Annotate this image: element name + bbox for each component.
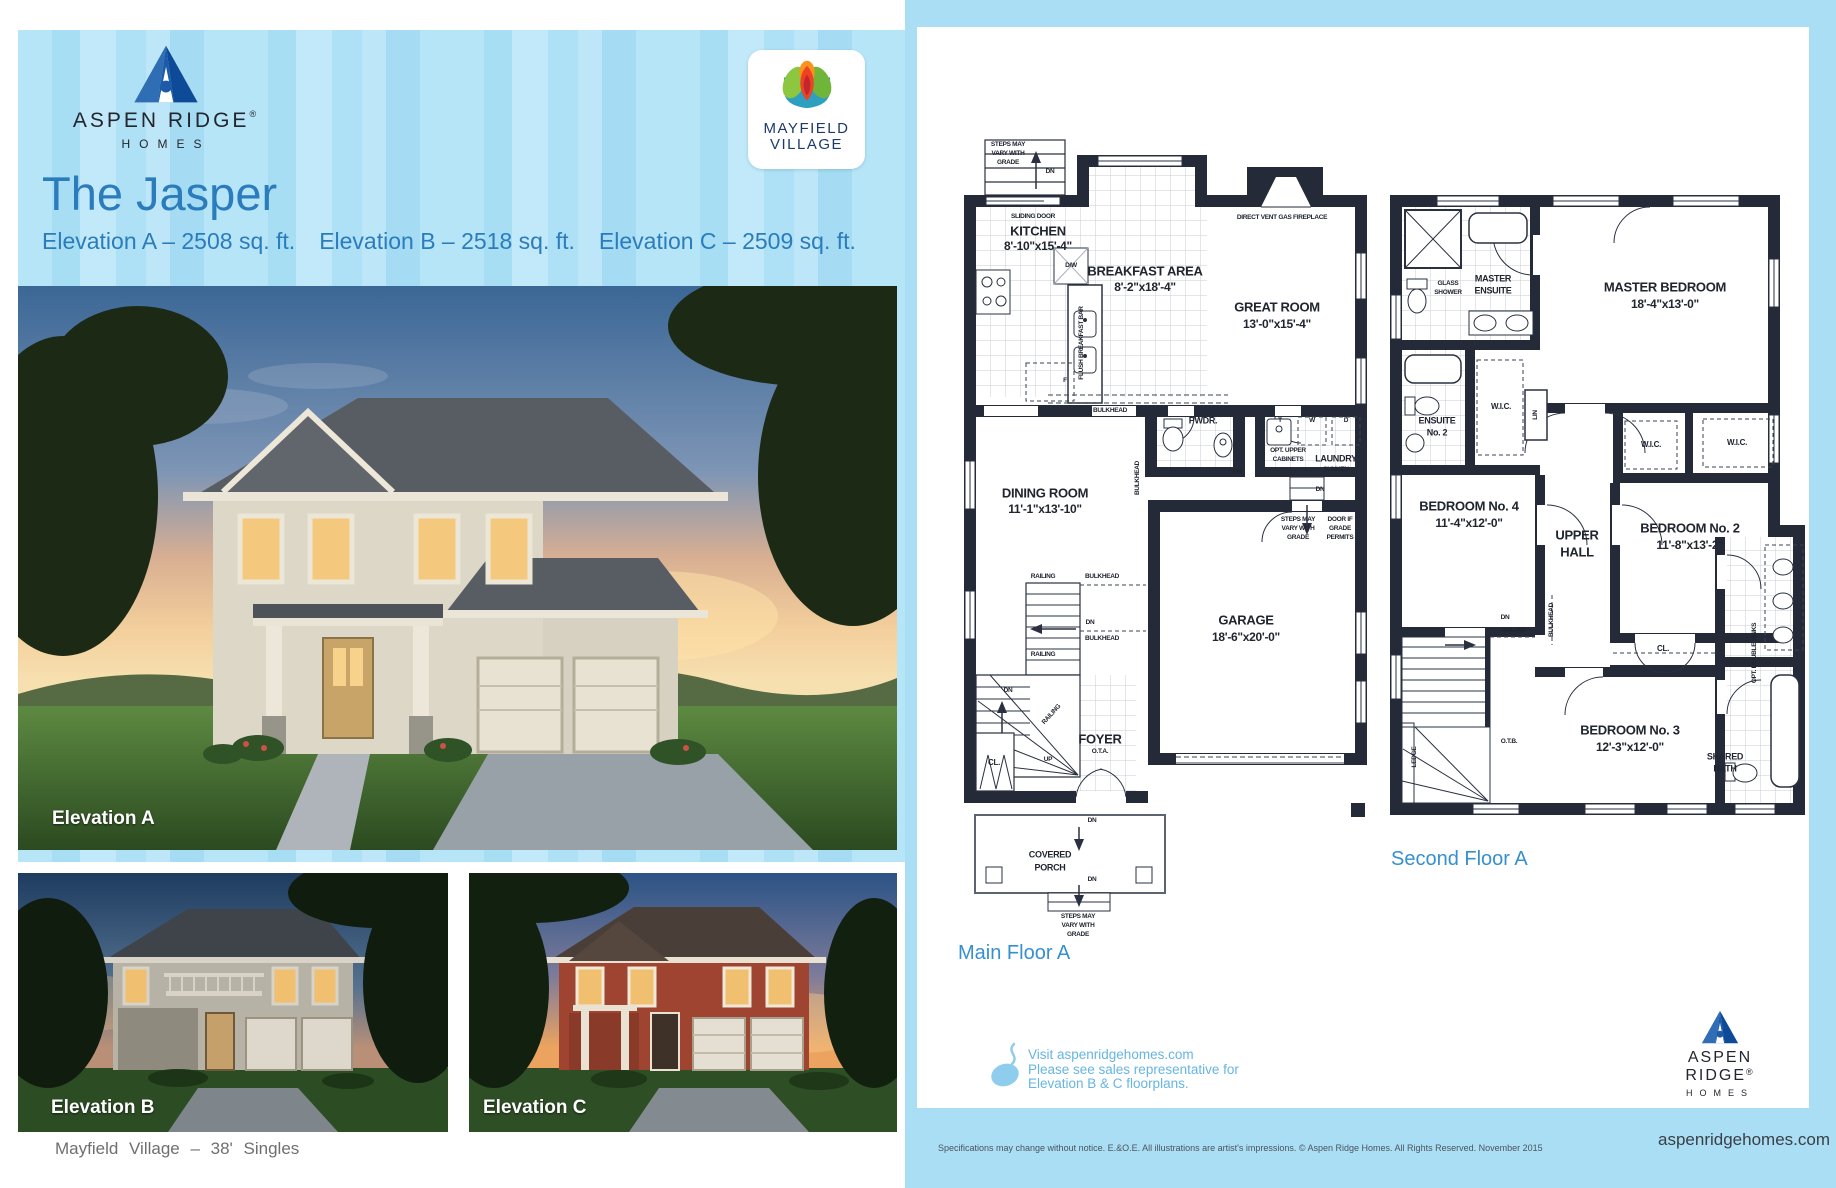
plan-note: VARY WITH	[992, 151, 1025, 158]
elevation-a-photo: Elevation A	[18, 286, 897, 850]
room-dims-great-room: 13'-0"x15'-4"	[1243, 318, 1311, 330]
mayfield-text-line2: VILLAGE	[748, 137, 865, 153]
room-label-porch: COVERED	[1029, 851, 1071, 860]
aspen-ridge-logo-footer: ASPEN RIDGE® HOMES	[1655, 1010, 1785, 1098]
room-label-upper-hall2: HALL	[1560, 546, 1593, 559]
plan-note-dn: DN	[1316, 487, 1325, 494]
room-label-garage: GARAGE	[1218, 614, 1273, 627]
plan-note: VARY WITH	[1062, 923, 1095, 930]
second-floor-caption: Second Floor A	[1391, 848, 1528, 871]
plan-note: PERMITS	[1327, 535, 1354, 542]
room-label-upper-hall: UPPER	[1555, 529, 1598, 542]
plan-note-sliding-door: SLIDING DOOR	[1011, 214, 1055, 221]
room-dims-breakfast: 8'-2"x18'-4"	[1114, 281, 1176, 293]
room-dims-bedroom4: 11'-4"x12'-0"	[1435, 517, 1502, 529]
room-label-master-ensuite: MASTER	[1475, 275, 1511, 284]
page-title: The Jasper	[42, 166, 277, 221]
plan-note: GRADE	[1287, 535, 1309, 542]
room-label-shared-bath2: BATH	[1713, 765, 1736, 774]
elevation-a-label: Elevation A	[52, 808, 155, 830]
room-label-wic: W.I.C.	[1727, 439, 1747, 447]
community-footer: Mayfield Village – 38' Singles	[55, 1139, 299, 1159]
sales-note: Visit aspenridgehomes.com Please see sal…	[1028, 1048, 1239, 1092]
registered-mark: ®	[249, 109, 259, 119]
room-label-powder: PWDR.	[1189, 417, 1218, 426]
plan-note-shower: SHOWER	[1434, 290, 1461, 297]
note-line-1: Visit aspenridgehomes.com	[1028, 1048, 1239, 1063]
plan-note-dn: DN	[1088, 877, 1097, 884]
room-label-ensuite2b: No. 2	[1427, 429, 1448, 438]
brochure-spread: ASPEN RIDGE® HOMES MAYFIELD VILLAGE The …	[0, 0, 1836, 1188]
plan-note-dn: DN	[1004, 688, 1013, 695]
main-floor-caption: Main Floor A	[958, 942, 1070, 965]
room-label-bedroom3: BEDROOM No. 3	[1580, 724, 1679, 737]
room-label-foyer: FOYER	[1078, 733, 1121, 746]
plan-note: STEPS MAY	[991, 142, 1025, 149]
brand-name-text: ASPEN RIDGE	[73, 109, 250, 132]
note-line-3: Elevation B & C floorplans.	[1028, 1077, 1239, 1092]
elevation-b-rendering	[18, 873, 448, 1132]
room-dims-kitchen: 8'-10"x15'-4"	[1004, 240, 1072, 252]
room-dims-bedroom3: 12'-3"x12'-0"	[1596, 741, 1664, 753]
plan-note-fireplace: DIRECT VENT GAS FIREPLACE	[1237, 215, 1327, 222]
room-label-kitchen: KITCHEN	[1010, 225, 1066, 238]
elevation-b-size: Elevation B – 2518 sq. ft.	[319, 228, 575, 255]
plan-note-dn: DN	[1046, 169, 1055, 176]
mayfield-flower-icon	[775, 58, 839, 116]
legal-text: Specifications may change without notice…	[938, 1143, 1543, 1153]
plan-note-ota: O.T.A.	[1092, 749, 1109, 756]
plan-note-sunken: SUNKEN	[1323, 467, 1349, 474]
plan-note-railing: RAILING	[1501, 628, 1526, 635]
plan-note-bulkhead: BULKHEAD	[1135, 461, 1142, 495]
plan-note-d: D	[1344, 418, 1348, 425]
room-label-closet: CL.	[988, 759, 1000, 767]
plan-note-railing: RAILING	[1031, 574, 1056, 581]
elevation-c-size: Elevation C – 2509 sq. ft.	[599, 228, 856, 255]
elevation-c-rendering	[469, 873, 897, 1132]
plan-note-w: W	[1309, 418, 1315, 425]
brand-name-footer-text: ASPEN RIDGE	[1685, 1049, 1752, 1084]
plan-note-dn: DN	[1501, 615, 1510, 622]
plan-note-bulkhead: BULKHEAD	[1085, 574, 1119, 581]
plan-note: VARY WITH	[1282, 526, 1315, 533]
plan-note: DOOR IF	[1328, 517, 1353, 524]
plan-note-dn: DN	[1088, 818, 1097, 825]
plan-note-bulkhead: BULKHEAD	[1549, 603, 1556, 637]
plan-note-opt-upper: OPT. UPPER	[1270, 448, 1306, 455]
room-label-dining: DINING ROOM	[1002, 487, 1088, 500]
room-label-breakfast: BREAKFAST AREA	[1087, 265, 1202, 278]
room-label-porch2: PORCH	[1034, 864, 1065, 873]
room-dims-dining: 11'-1"x13'-10"	[1008, 503, 1082, 515]
brand-homes: HOMES	[66, 137, 266, 151]
plan-note-t: T	[1278, 418, 1282, 425]
website-url: aspenridgehomes.com	[1658, 1130, 1830, 1150]
room-label-bedroom2: BEDROOM No. 2	[1640, 522, 1739, 535]
aspen-ridge-logo: ASPEN RIDGE® HOMES	[66, 44, 266, 160]
note-line-2: Please see sales representative for	[1028, 1063, 1239, 1078]
plan-note-dw: D/W	[1065, 263, 1077, 270]
room-label-wic: W.I.C.	[1491, 403, 1511, 411]
elevation-c-label: Elevation C	[483, 1097, 586, 1119]
plan-note-flush-bar: FLUSH BREAKFAST BAR	[1079, 306, 1086, 379]
brand-name: ASPEN RIDGE®	[66, 109, 266, 133]
plan-note-dn: DN	[1233, 469, 1242, 476]
plan-note: STEPS MAY	[1061, 914, 1095, 921]
plan-note-ledge: LEDGE	[1412, 747, 1419, 768]
room-label-laundry: LAUNDRY	[1315, 455, 1357, 464]
registered-mark: ®	[1746, 1067, 1755, 1077]
elevation-a-size: Elevation A – 2508 sq. ft.	[42, 228, 295, 255]
room-label-ensuite2: ENSUITE	[1419, 417, 1456, 426]
room-dims-master-bedroom: 18'-4"x13'-0"	[1631, 298, 1699, 310]
elevation-sizes: Elevation A – 2508 sq. ft. Elevation B –…	[42, 228, 856, 255]
brand-homes-footer: HOMES	[1655, 1088, 1785, 1098]
elevation-b-label: Elevation B	[51, 1097, 154, 1119]
room-label-bedroom4: BEDROOM No. 4	[1419, 500, 1518, 513]
plan-note-railing: RAILING	[1031, 652, 1056, 659]
main-floor-plan: STEPS MAY VARY WITH GRADE DN SLIDING DOO…	[930, 115, 1400, 965]
plan-note-cabinets: CABINETS	[1273, 457, 1304, 464]
plan-note-bulkhead: BULKHEAD	[1085, 636, 1119, 643]
computer-mouse-icon	[990, 1042, 1024, 1090]
room-label-wic: W.I.C.	[1641, 441, 1661, 449]
room-dims-bedroom2: 11'-8"x13'-2"	[1656, 539, 1723, 551]
plan-note: GRADE	[997, 160, 1019, 167]
plan-note-bulkhead: BULKHEAD	[1093, 408, 1127, 415]
elevation-b-photo: Elevation B	[18, 873, 448, 1132]
room-label-great-room: GREAT ROOM	[1234, 301, 1320, 314]
aspen-ridge-triangle-icon	[1701, 1010, 1739, 1044]
room-dims-garage: 18'-6"x20'-0"	[1212, 631, 1280, 643]
room-label-master-bedroom: MASTER BEDROOM	[1604, 281, 1726, 294]
room-label-shared-bath: SHARED	[1707, 753, 1743, 762]
second-floor-plan: GLASS SHOWER MASTER ENSUITE MASTER BEDRO…	[1385, 175, 1820, 865]
brand-name-footer: ASPEN RIDGE®	[1655, 1049, 1785, 1085]
left-page: ASPEN RIDGE® HOMES MAYFIELD VILLAGE The …	[0, 0, 905, 1188]
plan-note-opt-double-sinks: OPT. DOUBLE SINKS	[1752, 623, 1759, 683]
plan-note-glass: GLASS	[1438, 281, 1459, 288]
aspen-ridge-triangle-icon	[133, 44, 199, 104]
plan-note: STEPS MAY	[1281, 517, 1315, 524]
plan-note-linen: LIN	[1533, 410, 1540, 420]
elevation-a-rendering	[18, 286, 897, 850]
mayfield-text-line1: MAYFIELD	[748, 121, 865, 137]
plan-note: GRADE	[1067, 932, 1089, 939]
elevation-c-photo: Elevation C	[469, 873, 897, 1132]
plan-note: GRADE	[1329, 526, 1351, 533]
room-label-closet: CL.	[1657, 645, 1669, 653]
plan-note-dn: DN	[1086, 620, 1095, 627]
plan-note-otb: O.T.B.	[1501, 739, 1518, 746]
mayfield-village-logo: MAYFIELD VILLAGE	[748, 50, 865, 169]
plan-note-fridge: F	[1063, 378, 1067, 385]
room-label-master-ensuite2: ENSUITE	[1475, 287, 1512, 296]
plan-note-up: UP	[1044, 757, 1052, 764]
